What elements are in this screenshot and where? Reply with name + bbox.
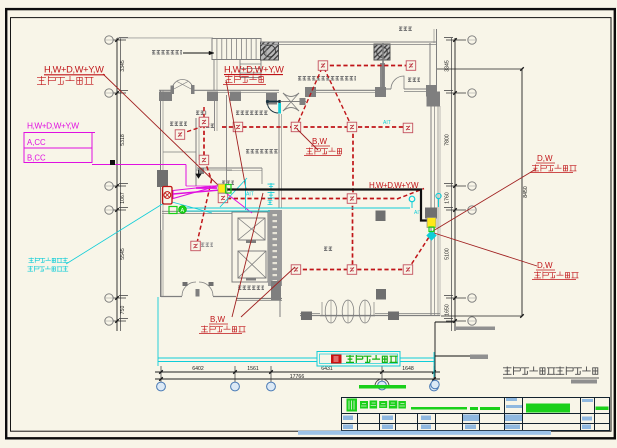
- svg-text:5100: 5100: [445, 248, 451, 260]
- svg-text:H,W+D,W+Y,W: H,W+D,W+Y,W: [44, 65, 104, 75]
- svg-text:3345: 3345: [445, 60, 451, 72]
- svg-text:17766: 17766: [290, 374, 305, 380]
- svg-text:B,W: B,W: [312, 137, 328, 146]
- svg-text:6402: 6402: [192, 366, 204, 372]
- svg-text:A,CC: A,CC: [27, 138, 46, 147]
- svg-text:H,W+D,W+Y,W: H,W+D,W+Y,W: [27, 121, 79, 131]
- svg-text:3345: 3345: [120, 60, 126, 72]
- svg-text:B,CC: B,CC: [27, 154, 46, 163]
- svg-text:1067: 1067: [120, 192, 126, 204]
- svg-text:7800: 7800: [445, 134, 451, 146]
- svg-text:H,W+D,W+Y,W: H,W+D,W+Y,W: [369, 181, 419, 190]
- svg-text:A: A: [181, 208, 185, 214]
- svg-text:AIT: AIT: [246, 192, 254, 198]
- svg-text:D,W: D,W: [537, 261, 553, 270]
- svg-text:B,W: B,W: [210, 315, 226, 324]
- svg-text:750: 750: [120, 306, 126, 315]
- svg-text:6431: 6431: [321, 366, 333, 372]
- svg-text:5545: 5545: [120, 248, 126, 260]
- svg-text:1760: 1760: [445, 192, 451, 204]
- svg-text:AIT: AIT: [383, 120, 391, 126]
- svg-text:1648: 1648: [402, 366, 414, 372]
- svg-text:1650: 1650: [445, 304, 451, 316]
- svg-text:8450: 8450: [523, 186, 529, 198]
- svg-text:5318: 5318: [120, 134, 126, 146]
- svg-text:1561: 1561: [247, 366, 259, 372]
- svg-text:H,W+D,W+Y,W: H,W+D,W+Y,W: [224, 65, 284, 75]
- svg-text:D,W: D,W: [537, 154, 553, 163]
